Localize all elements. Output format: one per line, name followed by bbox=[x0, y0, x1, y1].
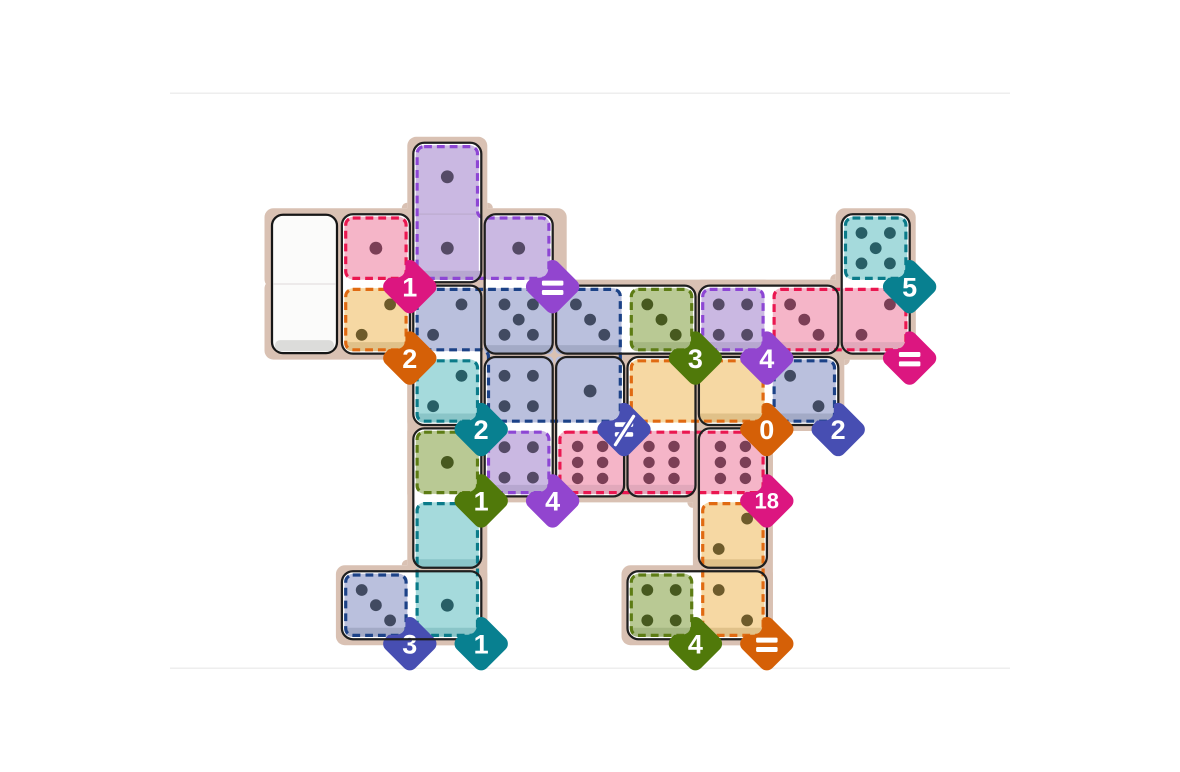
svg-text:2: 2 bbox=[402, 344, 417, 374]
svg-text:2: 2 bbox=[474, 415, 489, 445]
svg-text:1: 1 bbox=[402, 272, 417, 302]
svg-text:3: 3 bbox=[688, 344, 703, 374]
svg-text:3: 3 bbox=[402, 629, 417, 659]
svg-text:4: 4 bbox=[759, 344, 774, 374]
svg-text:4: 4 bbox=[688, 629, 703, 659]
svg-text:4: 4 bbox=[545, 487, 560, 517]
svg-text:1: 1 bbox=[474, 487, 489, 517]
svg-text:5: 5 bbox=[902, 272, 917, 302]
svg-text:0: 0 bbox=[759, 415, 774, 445]
svg-text:18: 18 bbox=[755, 489, 779, 514]
svg-text:1: 1 bbox=[474, 629, 489, 659]
svg-text:2: 2 bbox=[831, 415, 846, 445]
